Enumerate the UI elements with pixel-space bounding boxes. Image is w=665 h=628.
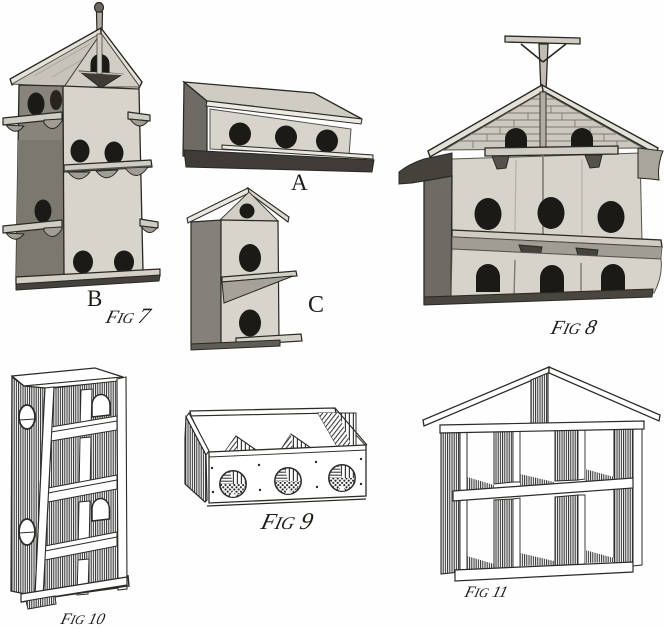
svg-text:FIG 9: FIG 9 [258, 508, 316, 535]
svg-text:FIG 10: FIG 10 [58, 610, 107, 628]
svg-text:C: C [308, 292, 324, 318]
svg-text:A: A [291, 170, 308, 195]
svg-text:FIG 7: FIG 7 [103, 303, 154, 328]
svg-text:FIG 8: FIG 8 [548, 315, 600, 339]
svg-text:B: B [87, 286, 102, 311]
svg-text:FIG 11: FIG 11 [462, 583, 510, 601]
